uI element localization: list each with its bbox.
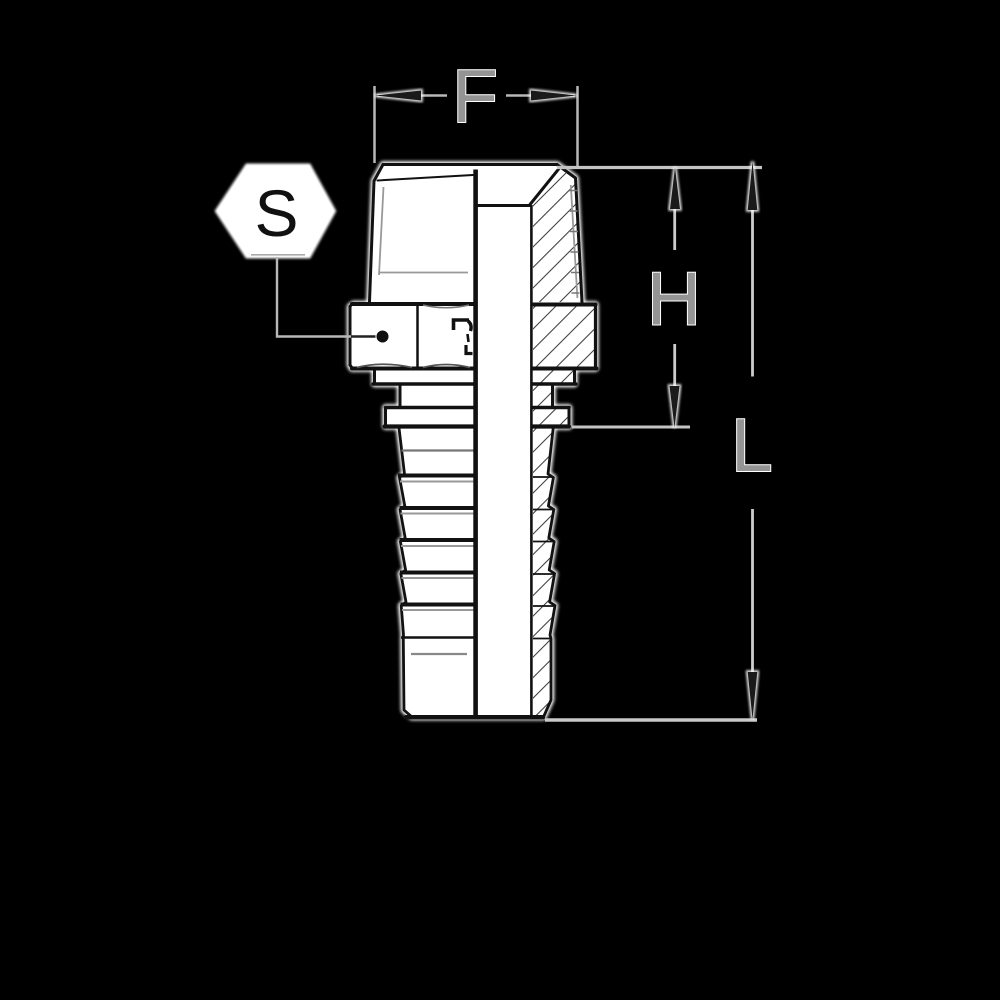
svg-text:L: L (731, 403, 773, 487)
svg-text:H: H (647, 257, 701, 341)
svg-text:S: S (254, 176, 298, 250)
svg-text:F: F (452, 54, 498, 138)
